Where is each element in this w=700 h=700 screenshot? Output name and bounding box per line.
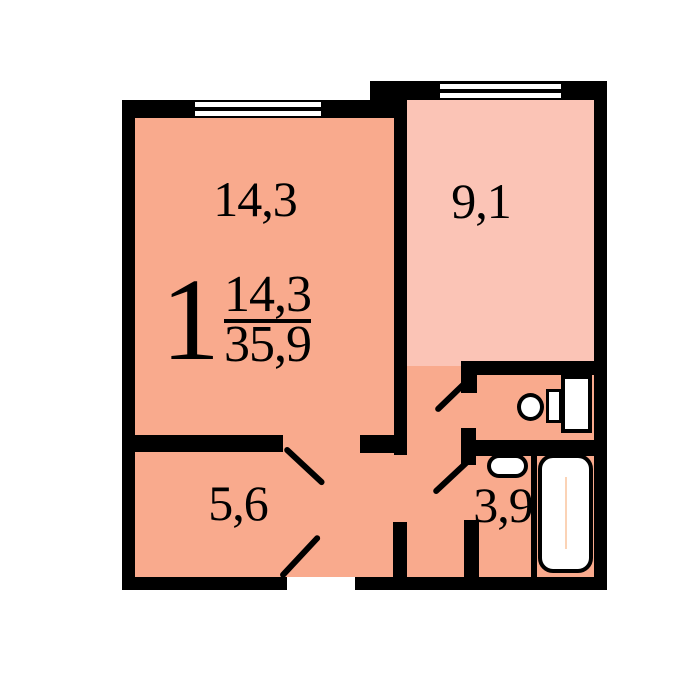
wall-hallway-stub xyxy=(393,522,407,577)
toilet-connector-icon xyxy=(546,389,562,423)
apartment-summary: 1 14,3 35,9 xyxy=(161,274,311,366)
wall-living-hall-right xyxy=(360,435,407,453)
area-fraction: 14,3 35,9 xyxy=(224,274,311,366)
kitchen-room-fill xyxy=(407,100,594,366)
bathtub-drain-line xyxy=(565,477,567,549)
wall-living-hall-left xyxy=(135,435,283,452)
toilet-tank-icon xyxy=(561,375,592,433)
floor-plan: 14,3 9,1 5,6 3,9 1 14,3 35,9 xyxy=(0,0,700,700)
hallway-area-label: 5,6 xyxy=(208,478,268,528)
total-area-value: 35,9 xyxy=(224,324,311,367)
wall-outer-right xyxy=(594,81,607,590)
sink-icon xyxy=(487,454,528,478)
kitchen-area-label: 9,1 xyxy=(451,176,511,226)
wall-wc-top xyxy=(461,361,594,375)
living-area-value: 14,3 xyxy=(224,274,311,317)
wall-outer-bottom-left xyxy=(122,577,287,590)
window-living-room xyxy=(194,100,322,118)
window-pane xyxy=(439,92,562,99)
rooms-count: 1 xyxy=(161,278,218,363)
window-kitchen xyxy=(439,81,562,100)
toilet-bowl-icon xyxy=(517,393,544,421)
wall-outer-left xyxy=(122,100,135,590)
wall-outer-bottom-right xyxy=(355,577,607,590)
living-room-area-label: 14,3 xyxy=(213,174,297,224)
window-pane xyxy=(439,83,562,90)
bathtub-icon xyxy=(538,454,593,573)
wall-living-kitchen-divider xyxy=(394,81,407,455)
window-pane xyxy=(194,101,322,108)
bathroom-area-label: 3,9 xyxy=(473,480,533,530)
window-pane xyxy=(194,110,322,117)
